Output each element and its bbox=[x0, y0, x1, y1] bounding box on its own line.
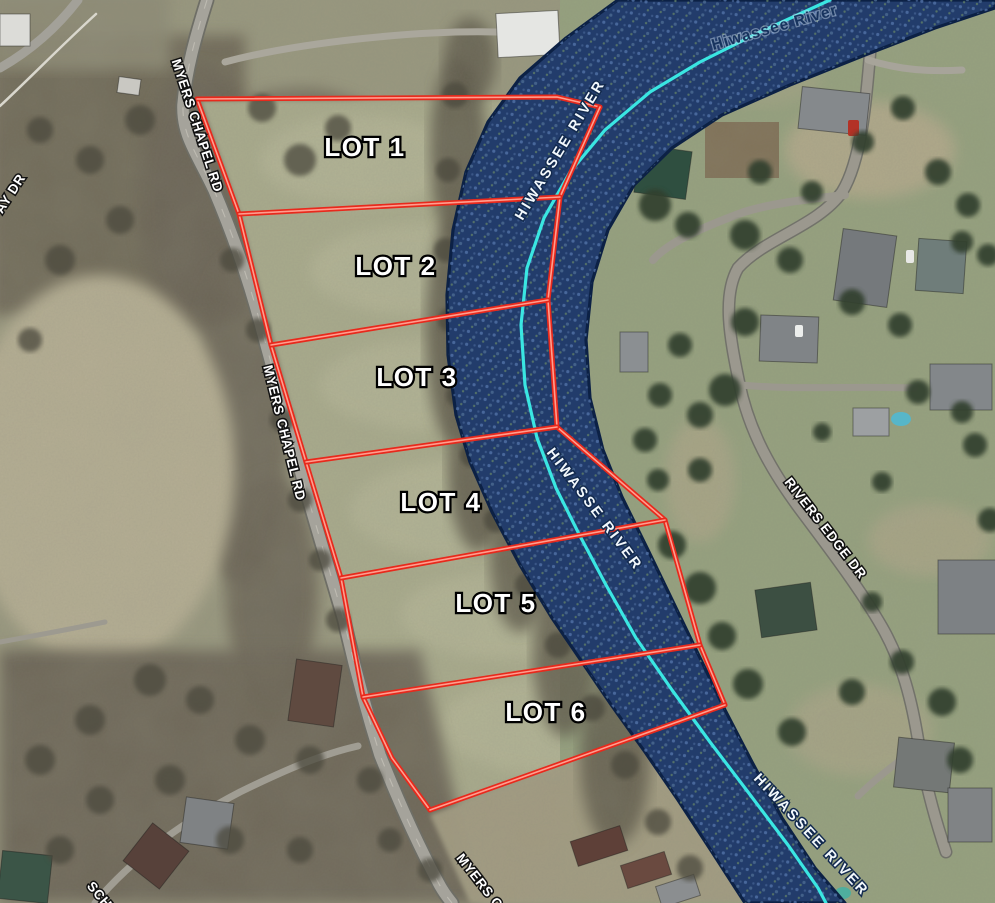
tree bbox=[839, 679, 865, 705]
tree bbox=[296, 746, 324, 774]
tree bbox=[668, 333, 692, 357]
aerial-plat-map: MYERS CHAPEL RDMYERS CHAPEL RDMYERS CAY … bbox=[0, 0, 995, 903]
tree bbox=[155, 765, 185, 795]
tree bbox=[25, 745, 55, 775]
tree bbox=[951, 231, 973, 253]
tree bbox=[777, 247, 803, 273]
building bbox=[853, 408, 889, 436]
tree bbox=[731, 308, 759, 336]
building bbox=[620, 332, 648, 372]
tree bbox=[216, 826, 244, 854]
tree bbox=[134, 664, 166, 696]
tree bbox=[688, 458, 712, 482]
pool bbox=[891, 412, 911, 426]
tree bbox=[186, 686, 214, 714]
building bbox=[0, 14, 30, 46]
building bbox=[0, 851, 52, 903]
tree bbox=[235, 725, 265, 755]
tree bbox=[709, 374, 741, 406]
tree bbox=[852, 131, 874, 153]
building bbox=[798, 87, 870, 136]
tree bbox=[675, 212, 701, 238]
building bbox=[117, 77, 141, 96]
tree bbox=[891, 96, 915, 120]
building bbox=[755, 582, 817, 637]
building bbox=[938, 560, 995, 634]
tree bbox=[648, 383, 672, 407]
lot-label-3: LOT 3 bbox=[376, 362, 457, 392]
tree bbox=[18, 328, 42, 352]
tree bbox=[86, 786, 114, 814]
building bbox=[288, 659, 342, 727]
tree bbox=[730, 220, 760, 250]
lot-label-1: LOT 1 bbox=[324, 132, 405, 162]
tree bbox=[862, 592, 882, 612]
tree bbox=[442, 82, 468, 108]
tree bbox=[46, 836, 74, 864]
tree bbox=[839, 289, 865, 315]
tree bbox=[647, 469, 669, 491]
tree bbox=[633, 428, 657, 452]
tree bbox=[677, 855, 703, 881]
tree bbox=[220, 248, 244, 272]
tree bbox=[125, 105, 155, 135]
tree bbox=[748, 160, 772, 184]
tree bbox=[813, 423, 831, 441]
rivers-edge-spur-pool bbox=[742, 385, 915, 388]
tree bbox=[951, 401, 973, 423]
tree bbox=[45, 245, 75, 275]
tree bbox=[890, 650, 914, 674]
tree bbox=[309, 549, 331, 571]
tree bbox=[947, 747, 973, 773]
lot-label-5: LOT 5 bbox=[455, 588, 536, 618]
building bbox=[894, 737, 955, 793]
tree bbox=[639, 189, 671, 221]
building bbox=[948, 788, 992, 842]
tree bbox=[611, 751, 639, 779]
tree bbox=[925, 159, 951, 185]
lot-label-4: LOT 4 bbox=[400, 487, 481, 517]
tree bbox=[106, 206, 134, 234]
tree bbox=[801, 181, 823, 203]
tree bbox=[906, 380, 930, 404]
lot-label-6: LOT 6 bbox=[505, 697, 586, 727]
tree bbox=[378, 828, 402, 852]
tree bbox=[645, 809, 671, 835]
tree bbox=[357, 767, 383, 793]
tree bbox=[75, 705, 105, 735]
tree bbox=[76, 146, 104, 174]
tree bbox=[928, 688, 956, 716]
building bbox=[759, 315, 819, 363]
tree bbox=[687, 402, 713, 428]
tree bbox=[284, 144, 316, 176]
tree bbox=[418, 858, 442, 882]
tree bbox=[287, 837, 313, 863]
car bbox=[795, 325, 803, 337]
tree bbox=[27, 117, 53, 143]
aerial-map-canvas: MYERS CHAPEL RDMYERS CHAPEL RDMYERS CAY … bbox=[0, 0, 995, 903]
tree bbox=[888, 313, 912, 337]
tree bbox=[708, 622, 736, 650]
tree bbox=[872, 472, 892, 492]
tree bbox=[956, 193, 980, 217]
lot-label-2: LOT 2 bbox=[355, 251, 436, 281]
tree bbox=[733, 669, 763, 699]
tree bbox=[436, 158, 460, 182]
tree bbox=[778, 718, 806, 746]
car bbox=[906, 250, 914, 263]
tree bbox=[963, 433, 987, 457]
